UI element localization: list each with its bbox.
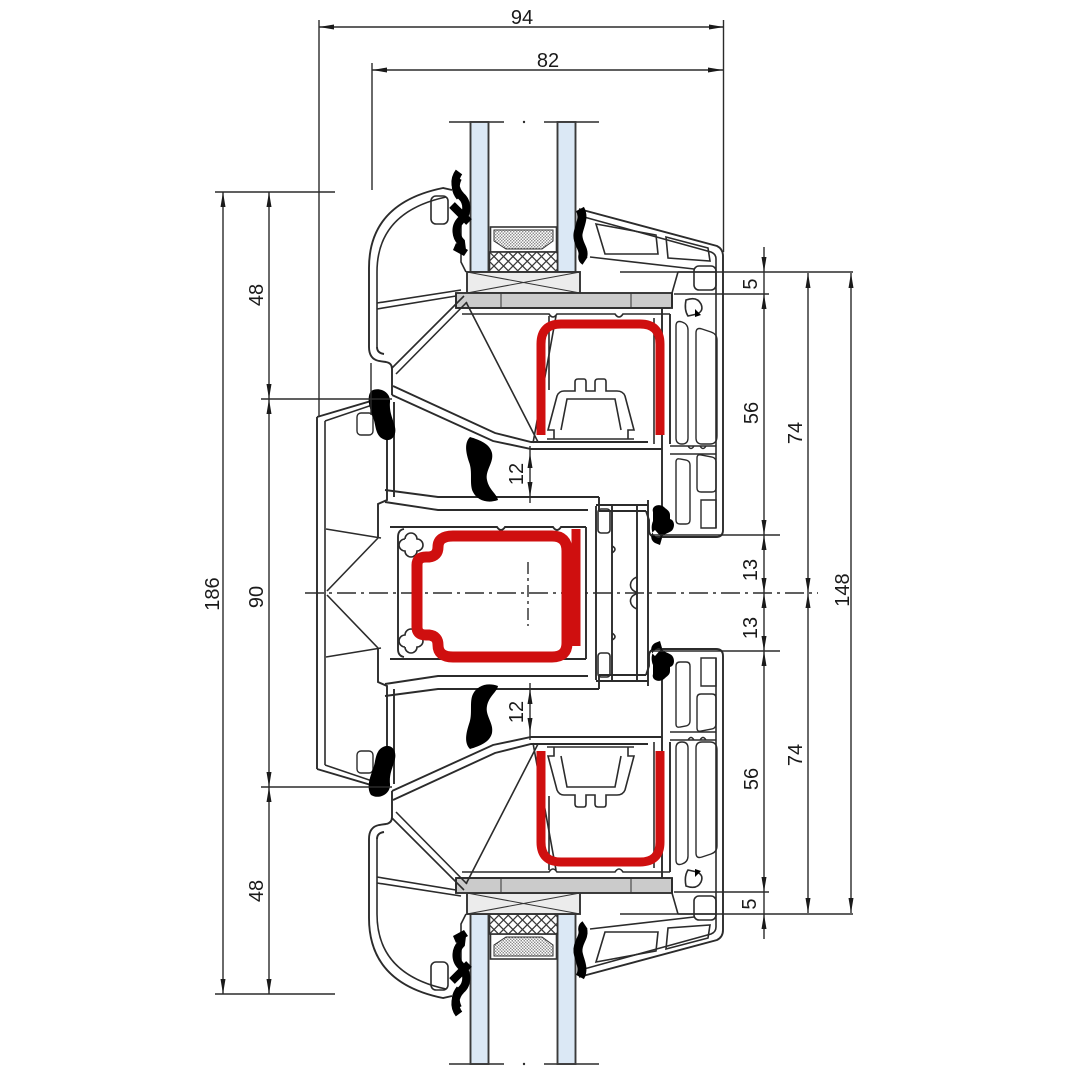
svg-text:48: 48 (246, 880, 268, 902)
svg-text:94: 94 (511, 7, 533, 29)
svg-text:148: 148 (832, 573, 854, 606)
svg-text:90: 90 (246, 586, 268, 608)
svg-text:5: 5 (740, 278, 762, 289)
svg-text:12: 12 (506, 463, 528, 485)
svg-text:5: 5 (739, 898, 761, 909)
svg-text:186: 186 (202, 577, 224, 610)
svg-text:56: 56 (741, 402, 763, 424)
svg-text:74: 74 (785, 744, 807, 766)
svg-text:74: 74 (785, 422, 807, 444)
svg-text:13: 13 (740, 617, 762, 639)
svg-text:82: 82 (537, 50, 559, 72)
svg-text:56: 56 (741, 768, 763, 790)
svg-text:12: 12 (506, 701, 528, 723)
svg-text:48: 48 (246, 284, 268, 306)
svg-text:13: 13 (740, 559, 762, 581)
